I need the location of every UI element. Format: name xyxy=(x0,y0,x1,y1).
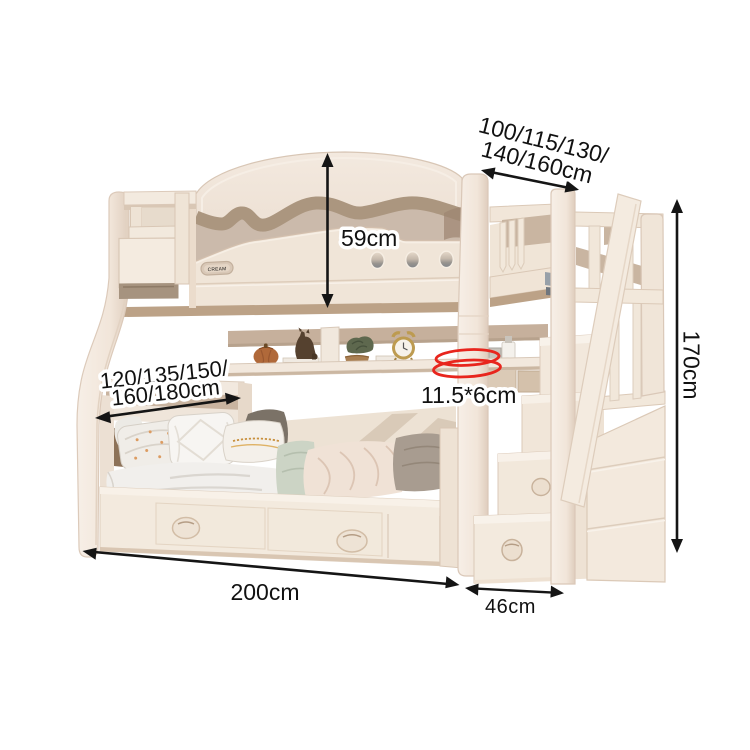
svg-text:59cm: 59cm xyxy=(341,225,397,251)
svg-text:200cm: 200cm xyxy=(230,579,299,605)
svg-text:CREAM: CREAM xyxy=(208,266,227,273)
svg-text:46cm: 46cm xyxy=(485,596,536,618)
svg-text:170cm: 170cm xyxy=(679,330,705,399)
svg-text:11.5*6cm: 11.5*6cm xyxy=(421,382,516,408)
